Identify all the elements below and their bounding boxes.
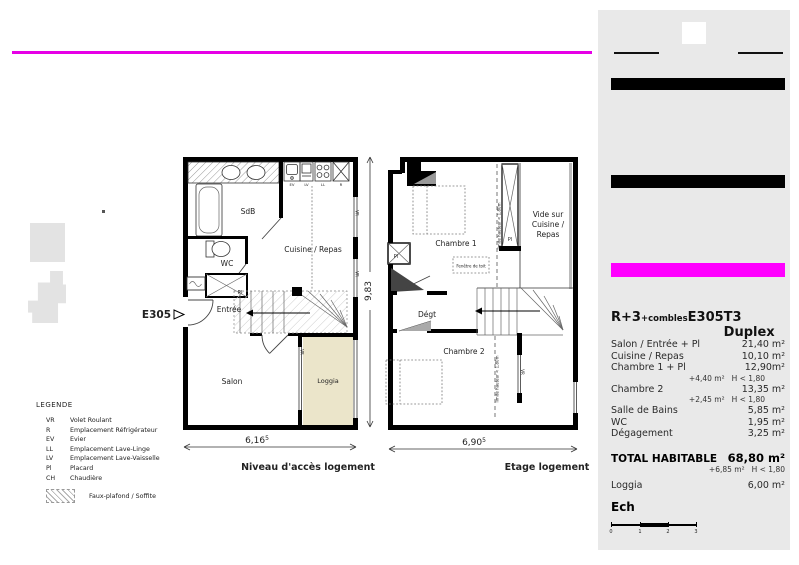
legend-label: Emplacement Lave-Vaisselle	[70, 454, 160, 464]
area-row-value: 12,90m²	[745, 362, 785, 374]
scale-number: 3	[692, 529, 700, 535]
total-value: 68,80 m²	[728, 451, 785, 465]
door-shade	[399, 321, 431, 331]
closet-label: Pl	[508, 237, 512, 243]
total-label: TOTAL HABITABLE	[611, 453, 717, 465]
legend-title: LEGENDE	[36, 401, 206, 409]
height-limit-label: limite hauteur < 1,80m	[495, 355, 500, 402]
legend-abbr: VR	[46, 416, 70, 426]
scale-tick	[640, 522, 641, 527]
closet-ground	[206, 274, 247, 297]
room-label-chambre1: Chambre 1	[435, 239, 477, 248]
vr-label: VR	[520, 369, 525, 375]
window-lines	[354, 197, 357, 418]
closet-label: Pl	[238, 290, 242, 296]
legend-abbr: CH	[46, 474, 70, 484]
legend-label: Volet Roulant	[70, 416, 112, 426]
boiler-box	[187, 277, 205, 290]
wall-chunk	[407, 162, 436, 186]
roof-window-box	[453, 257, 489, 273]
legend-label: Emplacement Réfrigérateur	[70, 426, 157, 436]
roof-shade	[414, 172, 436, 184]
room-label-cuisine: Cuisine / Repas	[284, 245, 342, 254]
closet-left-wall	[388, 243, 410, 264]
area-row-label: Dégagement	[611, 428, 673, 440]
bed-outlines	[386, 186, 465, 404]
unit-type: T3 Duplex	[724, 310, 785, 340]
bathroom-fixtures	[188, 162, 279, 257]
area-row-value: 3,25 m²	[748, 428, 785, 440]
room-label-loggia: Loggia	[317, 377, 339, 385]
scale-tick	[668, 522, 669, 527]
scale-number: 2	[664, 529, 672, 535]
legend-row: LLEmplacement Lave-Linge	[36, 445, 206, 455]
floor-plan-upper-level: Chambre 1 Chambre 2 Dégt Vide sur Cuisin…	[386, 157, 578, 430]
panel-black-bar-2	[611, 175, 785, 188]
scale-segment	[668, 524, 697, 526]
legend-row: LVEmplacement Lave-Vaisselle	[36, 454, 206, 464]
level-sub: +combles	[641, 314, 688, 324]
magenta-top-rule	[12, 51, 592, 54]
area-row-value: 5,85 m²	[748, 405, 785, 417]
area-row: Dégagement3,25 m²	[611, 428, 785, 440]
hatch-swatch-icon	[46, 489, 75, 503]
area-row: WC1,95 m²	[611, 417, 785, 429]
vr-label: VR	[355, 271, 360, 277]
caption-ground-level: Niveau d'accès logement	[241, 462, 375, 473]
legend-row: VRVolet Roulant	[36, 416, 206, 426]
area-row-value: 21,40 m²	[742, 339, 785, 351]
kitchen-label-ll: LL	[321, 182, 326, 187]
kitchen-label-lv: LV	[304, 182, 309, 187]
legend-row: REmplacement Réfrigérateur	[36, 426, 206, 436]
site-map-ghost-footprint	[28, 271, 66, 323]
legend-row: PlPlacard	[36, 464, 206, 474]
legend-label: Placard	[70, 464, 93, 474]
legend: LEGENDE VRVolet Roulant REmplacement Réf…	[36, 401, 206, 503]
area-row: Salle de Bains5,85 m²	[611, 405, 785, 417]
scale-segment	[640, 523, 668, 528]
panel-rule-left	[614, 52, 659, 54]
legend-label: Evier	[70, 435, 86, 445]
level-label: R+3+combles	[611, 310, 688, 325]
vr-label: VR	[300, 349, 305, 355]
sub-area: +2,45 m²	[689, 395, 725, 405]
sub-cond: H < 1,80	[732, 374, 765, 384]
area-row: Chambre 1 + Pl12,90m²	[611, 362, 785, 374]
roof-window-label: Fenêtre de toit	[456, 264, 486, 269]
vide-label-2: Cuisine /	[532, 220, 565, 229]
legend-label: Emplacement Lave-Linge	[70, 445, 150, 455]
dim-width-left: 6,165	[245, 435, 269, 446]
loggia-row: Loggia 6,00 m²	[611, 480, 785, 491]
kitchen-label-ev: EV	[290, 182, 295, 187]
area-row: Cuisine / Repas10,10 m²	[611, 351, 785, 363]
area-table: Salon / Entrée + Pl21,40 m² Cuisine / Re…	[611, 339, 785, 440]
room-label-sdb: SdB	[241, 207, 256, 216]
height-limit-label: limite hauteur < 1,80m	[497, 202, 502, 249]
unit-label: E305	[142, 309, 171, 321]
loggia-label: Loggia	[611, 480, 642, 491]
legend-row: EVEvier	[36, 435, 206, 445]
sub-cond: H < 1,80	[752, 465, 785, 475]
panel-white-notch	[682, 22, 706, 44]
area-row-label: Salon / Entrée + Pl	[611, 339, 700, 351]
area-row-label: Cuisine / Repas	[611, 351, 684, 363]
stairs-upper	[475, 288, 563, 335]
panel-magenta-bar	[611, 263, 785, 277]
area-row-sub: +4,40 m²H < 1,80	[611, 374, 785, 384]
legend-abbr: R	[46, 426, 70, 436]
north-mark	[102, 210, 105, 213]
area-row: Chambre 213,35 m²	[611, 384, 785, 396]
area-row-label: Chambre 2	[611, 384, 663, 396]
entrance-door	[188, 300, 213, 325]
vr-label: VR	[355, 210, 360, 216]
dim-height: 9,83	[364, 281, 374, 301]
room-label-chambre2: Chambre 2	[443, 347, 485, 356]
legend-row: CHChaudière	[36, 474, 206, 484]
vide-label-3: Repas	[537, 230, 560, 239]
stairs-ground	[234, 287, 347, 333]
area-row: Salon / Entrée + Pl21,40 m²	[611, 339, 785, 351]
title-block-panel: R+3+combles E305 T3 Duplex Salon / Entré…	[598, 10, 790, 550]
panel-rule-right	[738, 52, 783, 54]
total-row: TOTAL HABITABLE 68,80 m²	[611, 451, 785, 465]
area-row-value: 1,95 m²	[748, 417, 785, 429]
unit-number: E305	[688, 310, 724, 325]
scale-segment	[611, 524, 640, 526]
room-label-salon: Salon	[222, 377, 243, 386]
room-label-degt: Dégt	[418, 310, 436, 319]
sub-area: +4,40 m²	[689, 374, 725, 384]
sub-cond: H < 1,80	[732, 395, 765, 405]
panel-black-bar-1	[611, 78, 785, 90]
area-row-label: WC	[611, 417, 627, 429]
legend-abbr: LV	[46, 454, 70, 464]
kitchen-appliances	[284, 162, 349, 181]
area-row-value: 13,35 m²	[742, 384, 785, 396]
site-map-ghost-square	[30, 223, 65, 262]
closet-upper	[499, 164, 521, 251]
floor-plan-ground-level: E305 SdB WC Cuisine / Repas Entrée Salon…	[142, 157, 360, 430]
legend-abbr: LL	[46, 445, 70, 455]
legend-label: Chaudière	[70, 474, 102, 484]
scale-number: 1	[636, 529, 644, 535]
loggia-value: 6,00 m²	[748, 480, 785, 491]
scale-bar: 0 1 2 3	[611, 521, 698, 537]
legend-abbr: Pl	[46, 464, 70, 474]
room-label-entree: Entrée	[217, 305, 242, 314]
unit-header: R+3+combles E305 T3 Duplex	[611, 310, 785, 340]
scale-tick	[611, 522, 612, 527]
caption-upper-level: Etage logement	[505, 462, 590, 473]
legend-hatch-label: Faux-plafond / Soffite	[89, 493, 156, 500]
wall-wedge	[391, 268, 424, 292]
roof-slope-band	[569, 163, 572, 289]
area-row-sub: +2,45 m²H < 1,80	[611, 395, 785, 405]
loggia-area	[298, 333, 358, 425]
legend-abbr: EV	[46, 435, 70, 445]
scale-number: 0	[607, 529, 615, 535]
plan-sheet-page: E305 SdB WC Cuisine / Repas Entrée Salon…	[0, 0, 799, 565]
kitchen-label-r: R	[340, 182, 343, 187]
sub-area: +6,85 m²	[709, 465, 745, 475]
area-row-value: 10,10 m²	[742, 351, 785, 363]
area-row-label: Salle de Bains	[611, 405, 678, 417]
total-sub-row: +6,85 m² H < 1,80	[611, 465, 799, 475]
level-main: R+3	[611, 310, 641, 325]
room-label-wc: WC	[221, 259, 234, 268]
area-row-label: Chambre 1 + Pl	[611, 362, 686, 374]
unit-marker: E305	[142, 309, 184, 321]
legend-hatch-row: Faux-plafond / Soffite	[46, 489, 206, 503]
vide-label-1: Vide sur	[533, 210, 564, 219]
scale-title: Ech	[611, 500, 635, 514]
closet-label: Pl	[394, 254, 398, 260]
scale-tick	[696, 522, 697, 527]
dim-width-right: 6,905	[462, 437, 486, 448]
dimension-annotations: 6,165 6,905 9,83 Niveau d'accès logement…	[184, 157, 590, 473]
